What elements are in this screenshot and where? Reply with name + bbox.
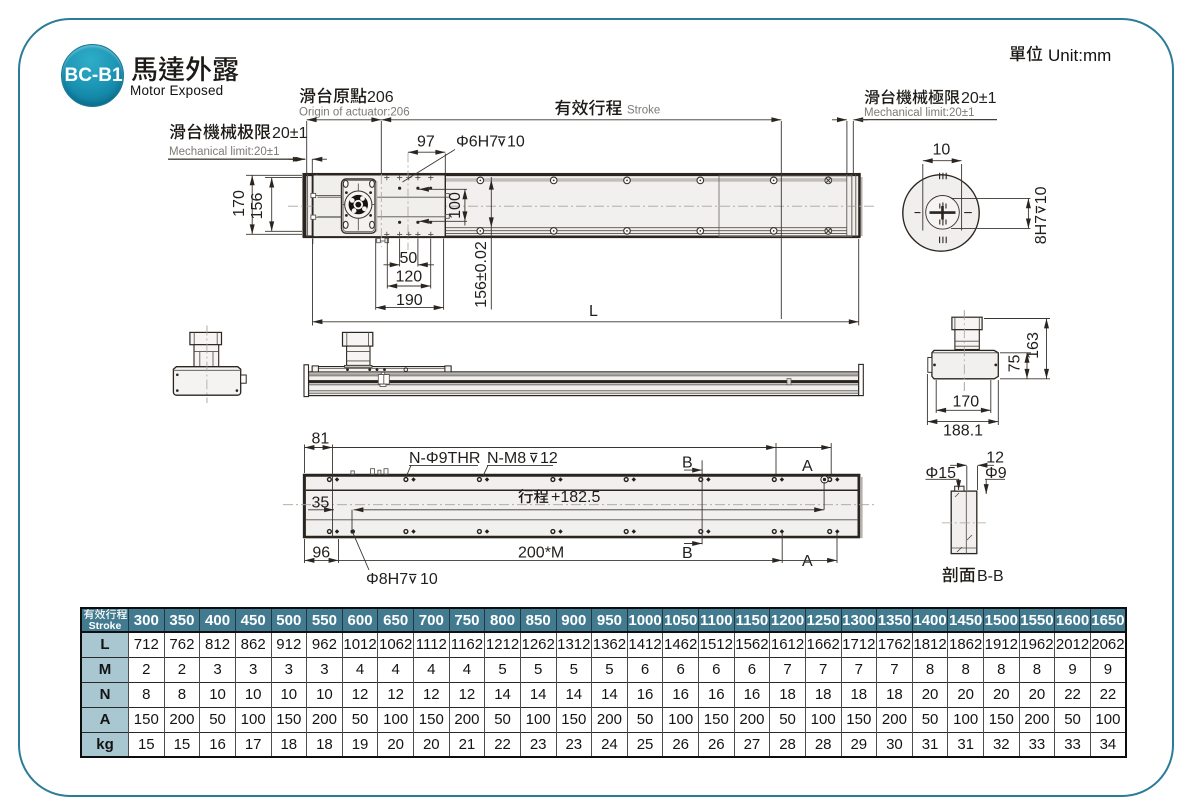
svg-text:L: L [589, 303, 598, 320]
svg-text:200*M: 200*M [518, 545, 564, 562]
svg-text:B: B [682, 455, 693, 472]
svg-text:Φ8H7: Φ8H7 [366, 571, 408, 588]
svg-text:20±1: 20±1 [272, 125, 308, 142]
svg-text:Mechanical limit:20±1: Mechanical limit:20±1 [864, 107, 975, 119]
svg-text:100: 100 [447, 192, 464, 219]
svg-text:B: B [682, 545, 693, 562]
svg-text:206: 206 [367, 89, 394, 106]
svg-text:+182.5: +182.5 [551, 489, 600, 506]
svg-text:A: A [802, 458, 813, 475]
svg-text:Stroke: Stroke [89, 620, 122, 631]
svg-text:190: 190 [396, 292, 423, 309]
svg-text:8H7: 8H7 [1033, 215, 1050, 244]
svg-text:Origin of actuator:206: Origin of actuator:206 [299, 107, 410, 119]
svg-text:75: 75 [1007, 355, 1024, 373]
svg-text:10: 10 [420, 571, 438, 588]
svg-text:N-Φ9THR: N-Φ9THR [409, 450, 480, 467]
svg-text:10: 10 [507, 134, 525, 151]
svg-text:156: 156 [249, 193, 266, 220]
svg-text:96: 96 [312, 545, 330, 562]
svg-text:10: 10 [933, 142, 951, 159]
svg-text:156±0.02: 156±0.02 [473, 241, 490, 308]
svg-text:81: 81 [312, 431, 330, 448]
svg-text:20±1: 20±1 [961, 90, 997, 107]
svg-text:Φ6H7: Φ6H7 [456, 134, 498, 151]
svg-text:N-M8: N-M8 [487, 450, 526, 467]
svg-text:Mechanical limit:20±1: Mechanical limit:20±1 [169, 146, 280, 158]
svg-text:97: 97 [417, 134, 435, 151]
svg-text:B-B: B-B [977, 568, 1004, 585]
svg-text:12: 12 [540, 450, 558, 467]
svg-text:170: 170 [231, 190, 248, 217]
svg-text:A: A [802, 553, 813, 570]
svg-text:120: 120 [396, 269, 423, 286]
svg-text:170: 170 [953, 394, 980, 411]
svg-text:35: 35 [312, 495, 330, 512]
svg-text:163: 163 [1025, 332, 1042, 359]
svg-text:50: 50 [400, 250, 418, 267]
svg-text:Stroke: Stroke [627, 105, 660, 117]
svg-text:188.1: 188.1 [943, 422, 983, 439]
svg-text:10: 10 [1033, 186, 1050, 204]
